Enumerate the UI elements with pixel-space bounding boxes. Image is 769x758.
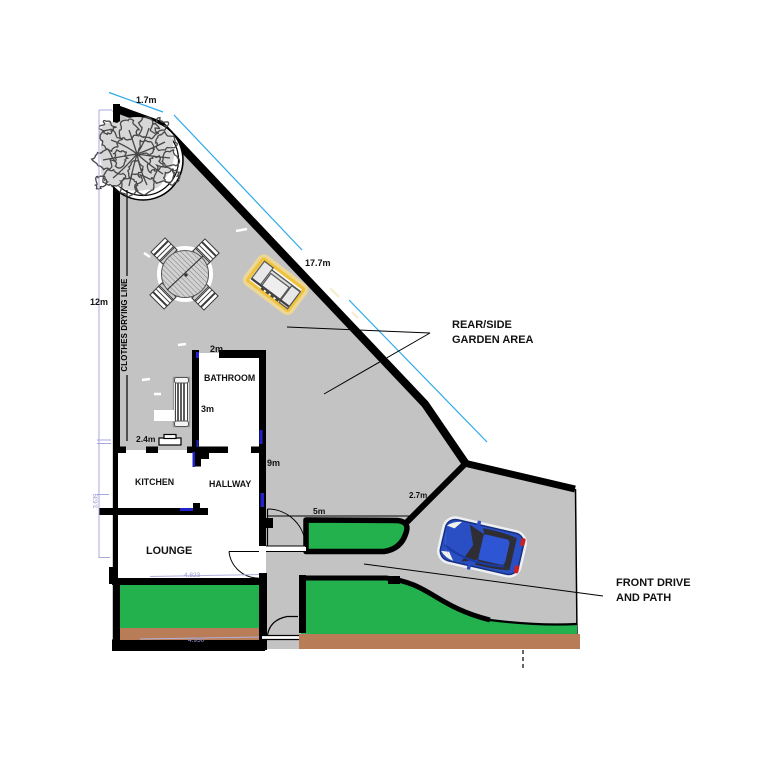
svg-text:CLOTHES DRYING LINE: CLOTHES DRYING LINE (120, 278, 129, 371)
svg-text:KITCHEN: KITCHEN (135, 477, 174, 487)
svg-text:12m: 12m (90, 297, 108, 307)
svg-text:9m: 9m (267, 458, 280, 468)
svg-text:5m: 5m (313, 506, 326, 516)
svg-text:17.7m: 17.7m (305, 258, 331, 268)
svg-text:AND PATH: AND PATH (616, 592, 671, 604)
svg-text:GARDEN AREA: GARDEN AREA (452, 334, 534, 346)
svg-text:2.4m: 2.4m (136, 434, 156, 444)
svg-text:4.823: 4.823 (184, 572, 201, 579)
svg-text:BATHROOM: BATHROOM (204, 373, 255, 383)
svg-text:2.7m: 2.7m (409, 491, 427, 500)
svg-text:2m: 2m (210, 344, 223, 354)
svg-text:REAR/SIDE: REAR/SIDE (452, 319, 512, 331)
svg-text:FRONT DRIVE: FRONT DRIVE (616, 577, 691, 589)
svg-text:3m: 3m (201, 404, 214, 414)
svg-text:4.950: 4.950 (188, 637, 205, 644)
svg-text:3.639: 3.639 (94, 493, 100, 509)
svg-text:HALLWAY: HALLWAY (209, 479, 251, 489)
svg-text:1.7m: 1.7m (136, 95, 157, 105)
svg-text:LOUNGE: LOUNGE (146, 545, 192, 557)
